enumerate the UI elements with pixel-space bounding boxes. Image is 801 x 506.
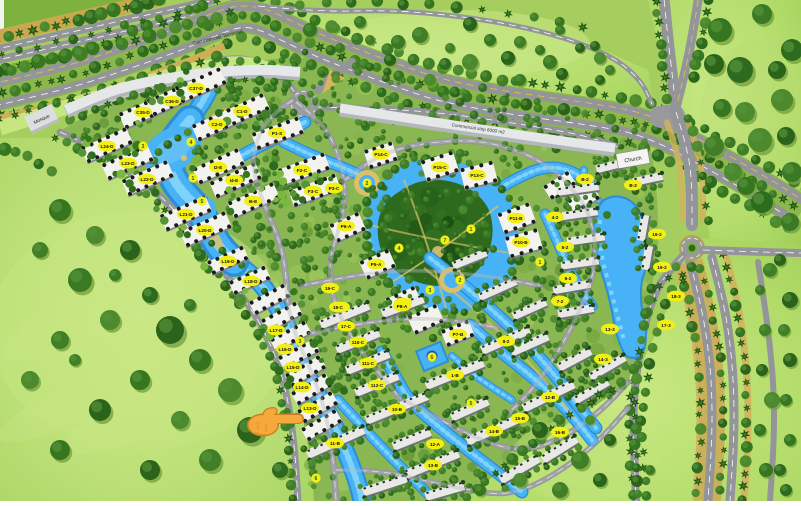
svg-text:P15-C: P15-C — [433, 165, 447, 170]
svg-text:4-2: 4-2 — [552, 215, 559, 220]
svg-text:P6-A: P6-A — [341, 224, 352, 229]
svg-text:P3-C: P3-C — [329, 186, 340, 191]
svg-text:12-A: 12-A — [430, 442, 441, 447]
svg-text:6: 6 — [431, 355, 434, 361]
svg-text:L15-D: L15-D — [286, 365, 300, 370]
svg-text:5: 5 — [470, 401, 473, 407]
svg-text:L13-D: L13-D — [303, 406, 317, 411]
svg-text:112-C: 112-C — [371, 383, 384, 388]
svg-text:C35-D: C35-D — [136, 110, 150, 115]
svg-text:12-B: 12-B — [545, 395, 556, 400]
svg-text:6: 6 — [315, 476, 318, 482]
svg-text:5: 5 — [201, 199, 204, 205]
svg-text:L24-D: L24-D — [100, 144, 114, 149]
svg-text:I2-E: I2-E — [214, 165, 223, 170]
svg-text:P10-B: P10-B — [514, 240, 528, 245]
svg-text:16-B: 16-B — [555, 430, 566, 435]
svg-text:P8-A: P8-A — [397, 304, 408, 309]
svg-text:7-2: 7-2 — [557, 299, 564, 304]
svg-text:1: 1 — [539, 260, 542, 266]
svg-text:7: 7 — [444, 238, 447, 244]
svg-text:19-2: 19-2 — [657, 265, 667, 270]
svg-text:14-3: 14-3 — [598, 357, 608, 362]
svg-text:L14-D: L14-D — [295, 385, 309, 390]
svg-text:C36-D: C36-D — [165, 99, 179, 104]
svg-text:17-3: 17-3 — [661, 323, 671, 328]
svg-text:L22-D: L22-D — [140, 177, 154, 182]
svg-text:19-C: 19-C — [325, 286, 336, 291]
svg-text:L19-D: L19-D — [221, 259, 235, 264]
svg-text:C2-D: C2-D — [212, 122, 224, 127]
svg-text:5-2: 5-2 — [562, 245, 569, 250]
svg-text:1-B: 1-B — [451, 373, 459, 378]
svg-text:17-C: 17-C — [341, 324, 352, 329]
svg-text:2: 2 — [366, 181, 369, 187]
svg-text:L20-D: L20-D — [198, 228, 212, 233]
svg-text:2: 2 — [459, 278, 462, 284]
svg-text:B-2: B-2 — [581, 177, 589, 182]
svg-text:B-3: B-3 — [629, 183, 637, 188]
svg-text:L17-D: L17-D — [269, 328, 283, 333]
svg-text:3: 3 — [429, 288, 432, 294]
svg-text:111-C: 111-C — [362, 361, 375, 366]
svg-text:P11-B: P11-B — [509, 216, 523, 221]
svg-text:13-3: 13-3 — [605, 327, 615, 332]
svg-text:I6-E: I6-E — [249, 199, 258, 204]
svg-text:L23-D: L23-D — [121, 161, 135, 166]
svg-text:11-B: 11-B — [330, 441, 341, 446]
svg-text:110-C: 110-C — [352, 340, 365, 345]
svg-text:16-2: 16-2 — [652, 232, 662, 237]
svg-text:1: 1 — [192, 176, 195, 182]
svg-text:L18-D: L18-D — [244, 279, 258, 284]
svg-text:18-C: 18-C — [333, 305, 344, 310]
svg-text:1: 1 — [470, 227, 473, 233]
svg-text:18-3: 18-3 — [671, 294, 681, 299]
svg-text:L16-D: L16-D — [278, 347, 292, 352]
svg-text:4: 4 — [398, 246, 401, 252]
svg-text:F3-C: F3-C — [308, 189, 319, 194]
svg-text:C1-D: C1-D — [237, 109, 249, 114]
svg-text:8-2: 8-2 — [503, 339, 510, 344]
svg-text:F2-C: F2-C — [297, 168, 308, 173]
svg-text:14-B: 14-B — [489, 429, 500, 434]
svg-text:3: 3 — [299, 339, 302, 345]
svg-text:P13-C: P13-C — [470, 173, 484, 178]
svg-text:C37-D: C37-D — [189, 86, 203, 91]
svg-text:P5-A: P5-A — [371, 262, 382, 267]
svg-text:13-B: 13-B — [428, 463, 439, 468]
svg-text:L21-D: L21-D — [179, 212, 193, 217]
svg-text:I4-E: I4-E — [230, 178, 239, 183]
svg-text:15-B: 15-B — [515, 416, 526, 421]
svg-text:10-B: 10-B — [392, 407, 403, 412]
svg-text:P7-B: P7-B — [453, 332, 464, 337]
svg-text:6-2: 6-2 — [565, 276, 572, 281]
svg-text:P1-S: P1-S — [272, 131, 282, 136]
svg-text:4: 4 — [190, 140, 193, 146]
svg-text:3: 3 — [142, 144, 145, 150]
svg-text:P14-C: P14-C — [374, 152, 388, 157]
